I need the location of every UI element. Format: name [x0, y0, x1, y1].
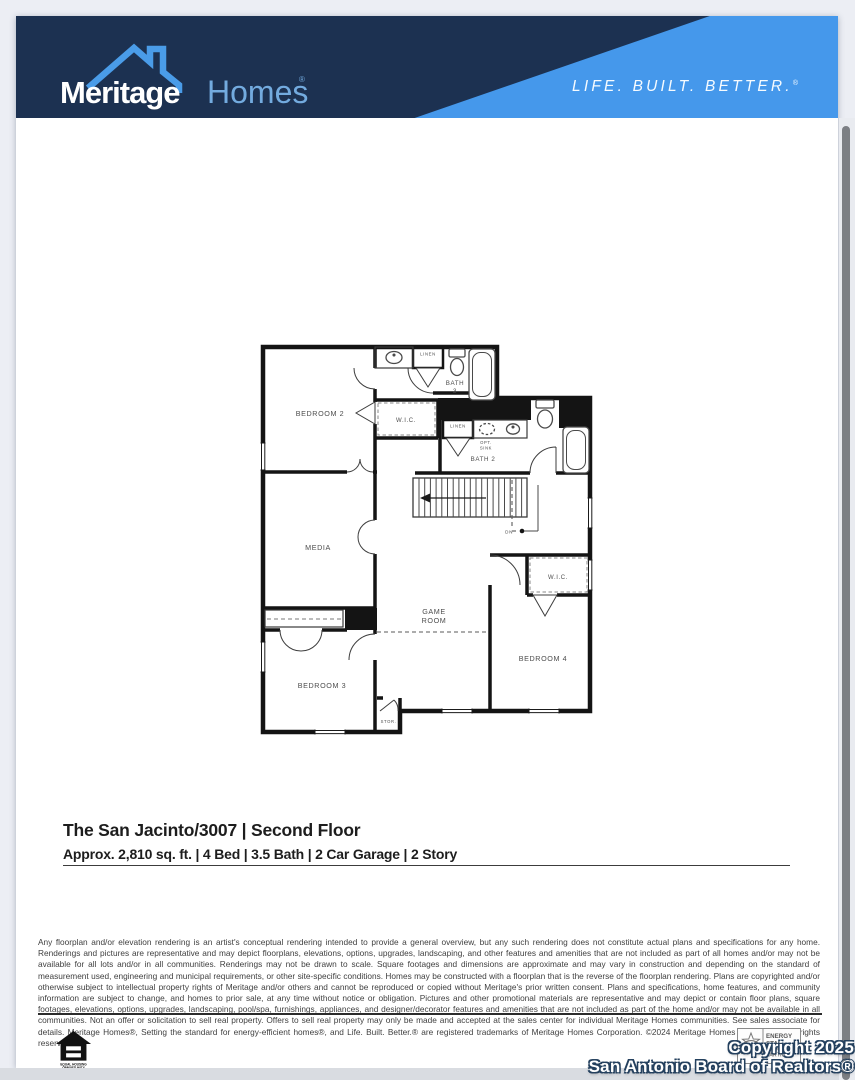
staircase	[413, 478, 538, 531]
toilet-bath3-bowl	[451, 359, 464, 376]
watermark-line-1: Copyright 2025	[589, 1038, 854, 1057]
logo-brand-serif: Homes	[207, 74, 308, 110]
room-label-stor: STOR.	[381, 719, 397, 724]
title-block: The San Jacinto/3007 | Second Floor Appr…	[63, 820, 803, 862]
equal-housing-logo: EQUAL HOUSING OPPORTUNITY	[55, 1030, 92, 1070]
legal-disclaimer: Any floorplan and/or elevation rendering…	[38, 937, 820, 1049]
room-label-bedroom4: BEDROOM 4	[519, 654, 568, 663]
room-label-media: MEDIA	[305, 543, 331, 552]
floorplan: BEDROOM 2 BATH 3 LINEN W.I.C. LINEN OPT.…	[250, 340, 595, 740]
stair-dn-label: DN	[505, 530, 513, 535]
room-label-wic-a: W.I.C.	[396, 418, 416, 424]
flyer-page: Meritage Homes ® LIFE. BUILT. BETTER.®	[16, 16, 838, 1068]
copyright-watermark: Copyright 2025 San Antonio Board of Real…	[589, 1038, 855, 1076]
tagline: LIFE. BUILT. BETTER.®	[572, 78, 798, 96]
room-label-bedroom2: BEDROOM 2	[296, 409, 345, 418]
tagline-text: LIFE. BUILT. BETTER.	[572, 78, 793, 95]
dn-marker-dot	[520, 529, 525, 534]
room-label-opt: OPT.	[480, 440, 492, 445]
room-label-game-room: ROOM	[422, 616, 447, 625]
room-label-bath3-num: 3	[453, 388, 457, 395]
footer-divider	[38, 1013, 822, 1015]
room-label-wic-b: W.I.C.	[548, 575, 568, 581]
meritage-homes-logo: Meritage Homes ®	[60, 36, 310, 114]
scrollbar-thumb[interactable]	[842, 126, 850, 1080]
room-label-linen-a: LINEN	[420, 352, 436, 357]
room-label-game: GAME	[422, 607, 446, 616]
sink-bath2	[507, 424, 520, 434]
toilet-bath3-tank	[449, 349, 465, 357]
room-label-bedroom3: BEDROOM 3	[298, 681, 347, 690]
room-label-opt-sink: SINK	[480, 446, 492, 451]
title-divider	[63, 865, 790, 866]
room-label-bath3: BATH	[446, 380, 464, 387]
tagline-reg-mark: ®	[793, 80, 798, 87]
toilet-bath2-bowl	[538, 410, 553, 428]
toilet-bath2-tank	[536, 400, 554, 408]
opt-sink-bath2	[480, 424, 495, 435]
floorplan-svg: BEDROOM 2 BATH 3 LINEN W.I.C. LINEN OPT.…	[250, 340, 595, 740]
page-subtitle: Approx. 2,810 sq. ft. | 4 Bed | 3.5 Bath…	[63, 846, 803, 862]
watermark-line-2: San Antonio Board of Realtors®	[589, 1057, 854, 1076]
header-banner: Meritage Homes ® LIFE. BUILT. BETTER.®	[16, 16, 838, 118]
sink-bath3	[386, 352, 402, 364]
room-label-linen-b: LINEN	[450, 424, 466, 429]
logo-reg-mark: ®	[299, 75, 305, 84]
room-label-bath2: BATH 2	[471, 456, 496, 463]
page-title: The San Jacinto/3007 | Second Floor	[63, 820, 803, 841]
windows	[261, 443, 593, 735]
logo-brand-bold: Meritage	[60, 75, 180, 110]
